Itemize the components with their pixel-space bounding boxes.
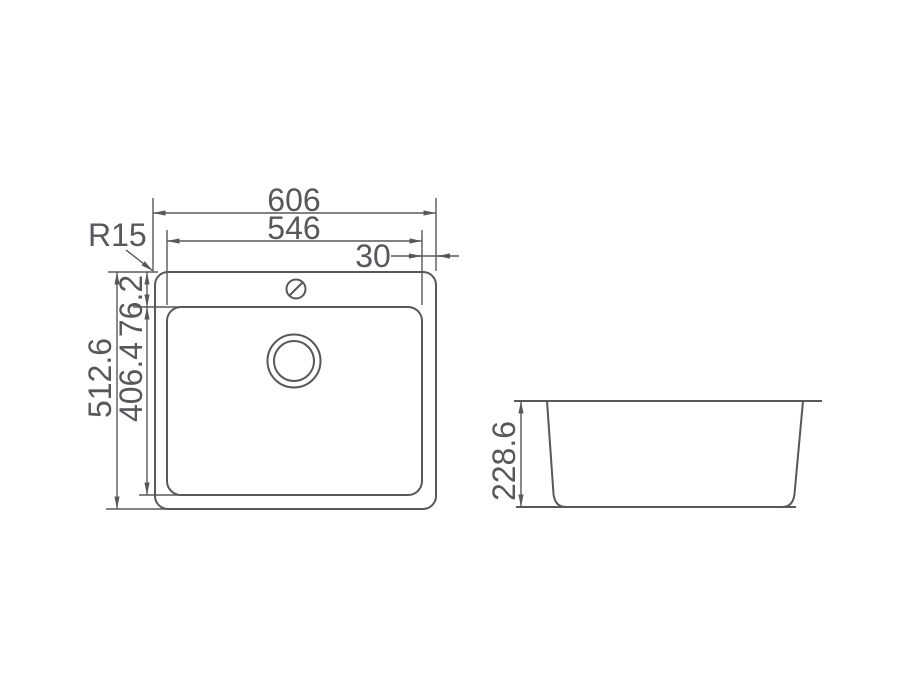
leader-line-corner-radius: [126, 250, 153, 271]
side-left-wall: [547, 401, 566, 507]
top-view: 606 546 30 R15 512.6 76.2 406.4: [82, 182, 459, 509]
side-view: 228.6: [486, 401, 822, 507]
sink-dimension-diagram: 606 546 30 R15 512.6 76.2 406.4 228.6: [0, 0, 900, 700]
technical-drawing-canvas: 606 546 30 R15 512.6 76.2 406.4 228.6: [0, 0, 900, 700]
dim-text-rim-to-bowl: 76.2: [113, 275, 149, 337]
dim-text-corner-radius: R15: [88, 217, 147, 253]
side-right-wall: [782, 401, 803, 507]
drain-outer-circle: [268, 335, 321, 388]
dim-text-bowl-length: 406.4: [113, 342, 149, 422]
dim-text-bowl-width: 546: [267, 210, 320, 246]
dim-text-bowl-depth: 228.6: [486, 421, 522, 501]
faucet-hole-slash-icon: [290, 283, 303, 296]
dim-text-rim-offset: 30: [355, 238, 391, 274]
drain-inner-circle: [274, 341, 314, 381]
